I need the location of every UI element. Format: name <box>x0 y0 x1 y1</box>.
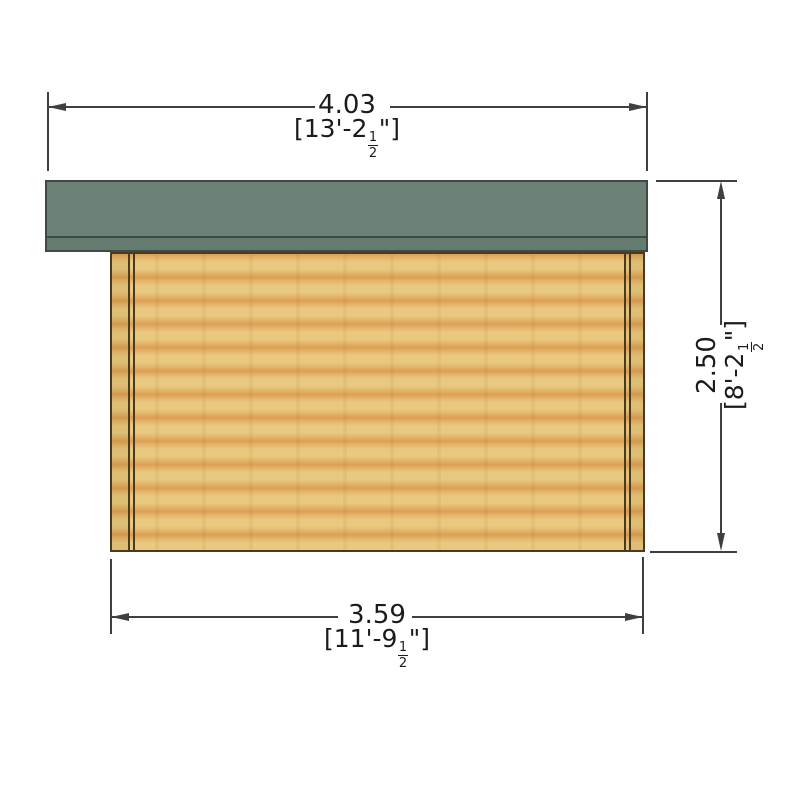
corner-post-left <box>112 254 128 550</box>
imperial-prefix: [11'-9 <box>324 624 397 653</box>
corner-joint-line <box>629 254 631 550</box>
arrowhead-down-icon <box>717 533 725 551</box>
extension-line-bottom <box>650 551 737 553</box>
right-dimension-labels: 2.50 [8'-212"] <box>701 260 759 470</box>
wall <box>110 252 645 552</box>
imperial-suffix: "] <box>720 320 749 341</box>
elevation-diagram: 4.03 [13'-212"] 2.50 [8'-212"] <box>0 0 800 800</box>
fraction-denominator: 2 <box>399 656 407 670</box>
fraction: 12 <box>368 131 378 160</box>
fraction-denominator: 2 <box>369 146 377 160</box>
arrowhead-left-icon <box>48 103 66 111</box>
arrowhead-up-icon <box>717 181 725 199</box>
imperial-prefix: [13'-2 <box>294 114 367 143</box>
roof-fascia <box>47 236 646 250</box>
bottom-imperial-value: [11'-912"] <box>277 625 477 670</box>
fraction-denominator: 2 <box>752 343 766 351</box>
corner-joint-line <box>128 254 130 550</box>
imperial-suffix: "] <box>379 114 400 143</box>
imperial-suffix: "] <box>409 624 430 653</box>
arrowhead-right-icon <box>625 613 643 621</box>
right-metric-value: 2.50 <box>693 336 721 394</box>
fraction-numerator: 1 <box>368 131 378 146</box>
fraction: 12 <box>738 342 767 352</box>
corner-post-right <box>631 254 643 550</box>
fraction: 12 <box>398 641 408 670</box>
extension-line-left <box>110 559 112 634</box>
top-imperial-value: [13'-212"] <box>247 115 447 160</box>
imperial-prefix: [8'-2 <box>720 353 749 410</box>
right-imperial-value: [8'-212"] <box>721 320 766 410</box>
roof <box>45 180 648 252</box>
arrowhead-right-icon <box>629 103 647 111</box>
corner-joint-line <box>133 254 135 550</box>
arrowhead-left-icon <box>111 613 129 621</box>
extension-line-right <box>642 557 644 634</box>
fraction-numerator: 1 <box>398 641 408 656</box>
corner-joint-line <box>624 254 626 550</box>
fraction-numerator: 1 <box>738 342 753 352</box>
